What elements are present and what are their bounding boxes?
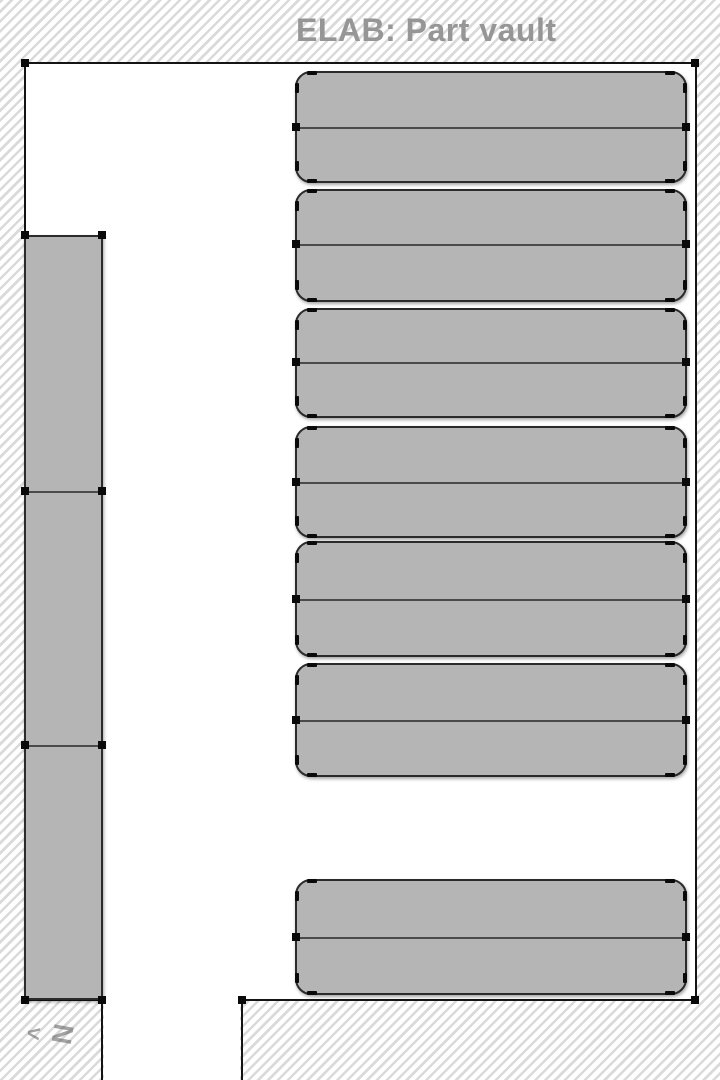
shelf-unit[interactable] [295, 663, 687, 777]
wall-node-marker [21, 996, 29, 1004]
divider-node [682, 595, 690, 603]
shelf-unit[interactable] [295, 189, 687, 302]
corner-tick [683, 973, 687, 983]
corner-tick [665, 541, 675, 545]
shelf-divider [297, 244, 685, 246]
shelf-divider [297, 482, 685, 484]
corner-tick [665, 663, 675, 667]
corner-tick [295, 553, 299, 563]
wall-node-marker [21, 59, 29, 67]
shelf-unit[interactable] [295, 308, 687, 418]
corner-tick [307, 189, 317, 193]
divider-node [682, 358, 690, 366]
divider-node [682, 716, 690, 724]
corner-tick [307, 179, 317, 183]
corner-tick [683, 201, 687, 211]
corner-tick [683, 320, 687, 330]
shelf-divider [26, 745, 101, 747]
corner-tick [307, 879, 317, 883]
corner-tick [307, 414, 317, 418]
divider-node [292, 716, 300, 724]
corner-tick [307, 773, 317, 777]
shelf-unit[interactable] [295, 71, 687, 183]
shelf-divider [297, 720, 685, 722]
corner-tick [665, 308, 675, 312]
divider-node [682, 478, 690, 486]
corner-tick [295, 973, 299, 983]
wall-block-bottom-right [241, 999, 696, 1080]
corner-tick [665, 653, 675, 657]
corner-tick [295, 396, 299, 406]
corner-node [98, 741, 106, 749]
corner-tick [683, 891, 687, 901]
corner-node [98, 231, 106, 239]
corner-node [21, 741, 29, 749]
wall-node-marker [691, 59, 699, 67]
wall-node-marker [98, 996, 106, 1004]
corner-tick [683, 280, 687, 290]
shelf-unit[interactable] [295, 541, 687, 657]
corner-tick [307, 534, 317, 538]
divider-node [292, 595, 300, 603]
divider-node [292, 240, 300, 248]
divider-node [682, 240, 690, 248]
corner-tick [665, 879, 675, 883]
corner-tick [683, 755, 687, 765]
shelf-divider [297, 127, 685, 129]
corner-tick [665, 426, 675, 430]
shelf-divider [297, 599, 685, 601]
corner-tick [307, 71, 317, 75]
shelf-unit-left[interactable] [24, 235, 103, 1000]
shelf-unit[interactable] [295, 879, 687, 995]
corner-tick [683, 83, 687, 93]
divider-node [292, 123, 300, 131]
corner-node [21, 487, 29, 495]
corner-tick [665, 298, 675, 302]
corner-tick [665, 71, 675, 75]
corner-node [21, 231, 29, 239]
shelf-unit[interactable] [295, 426, 687, 538]
corner-tick [307, 991, 317, 995]
corner-tick [665, 773, 675, 777]
corner-tick [295, 280, 299, 290]
corner-node [98, 487, 106, 495]
corner-tick [295, 755, 299, 765]
corner-tick [307, 426, 317, 430]
floor-plan-canvas[interactable] [0, 0, 720, 1080]
shelf-divider [297, 362, 685, 364]
corner-tick [295, 320, 299, 330]
corner-tick [295, 516, 299, 526]
corner-tick [295, 161, 299, 171]
north-arrow-icon: < [25, 1021, 42, 1046]
corner-tick [307, 298, 317, 302]
doorway-opening [104, 999, 240, 1080]
corner-tick [665, 189, 675, 193]
page-title: ELAB: Part vault [296, 12, 556, 49]
divider-node [292, 478, 300, 486]
divider-node [682, 123, 690, 131]
corner-tick [683, 553, 687, 563]
corner-tick [665, 414, 675, 418]
corner-tick [683, 635, 687, 645]
divider-node [292, 933, 300, 941]
shelf-divider [297, 937, 685, 939]
corner-tick [295, 675, 299, 685]
north-arrow: < N [26, 1014, 90, 1066]
corner-tick [307, 663, 317, 667]
corner-tick [683, 516, 687, 526]
corner-tick [307, 653, 317, 657]
corner-tick [295, 891, 299, 901]
corner-tick [665, 534, 675, 538]
corner-tick [295, 201, 299, 211]
corner-tick [665, 179, 675, 183]
corner-tick [295, 438, 299, 448]
corner-tick [307, 308, 317, 312]
corner-tick [295, 635, 299, 645]
shelf-divider [26, 491, 101, 493]
divider-node [682, 933, 690, 941]
corner-tick [683, 161, 687, 171]
corner-tick [683, 396, 687, 406]
corner-tick [683, 675, 687, 685]
corner-tick [295, 83, 299, 93]
corner-tick [665, 991, 675, 995]
corner-tick [307, 541, 317, 545]
wall-node-marker [691, 996, 699, 1004]
north-letter: N [47, 1022, 78, 1047]
corner-tick [683, 438, 687, 448]
divider-node [292, 358, 300, 366]
wall-node-marker [238, 996, 246, 1004]
